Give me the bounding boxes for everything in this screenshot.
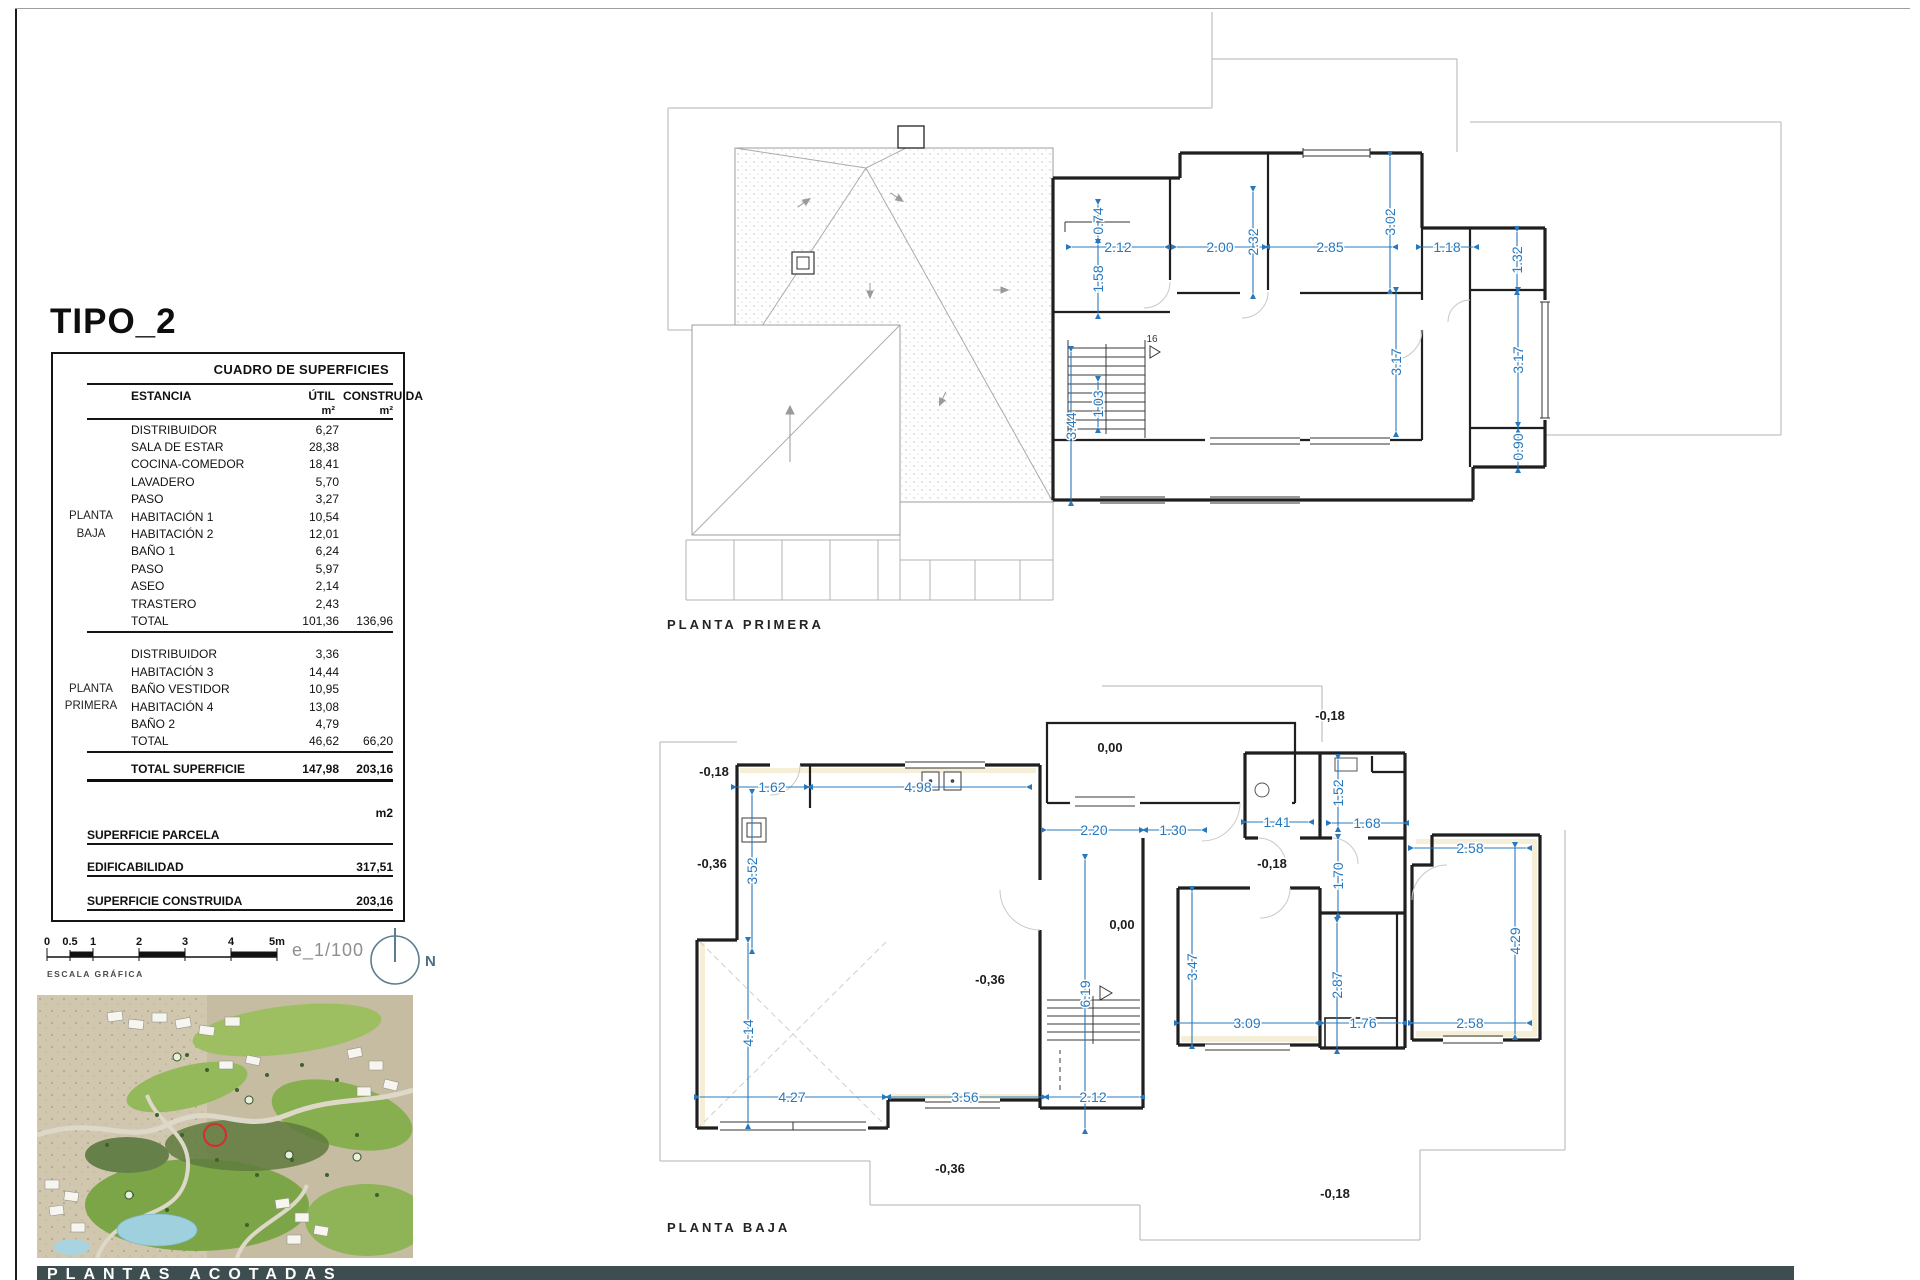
- m2-row: m2: [53, 804, 403, 821]
- dim-label: 2.32: [1245, 228, 1261, 255]
- roof-plan: [692, 126, 1053, 535]
- level-label: -0,18: [1320, 1186, 1350, 1201]
- scale-tick: 5m: [269, 936, 285, 948]
- level-label: -0,18: [1257, 856, 1287, 871]
- level-label: 0,00: [1097, 740, 1122, 755]
- level-label: 0,00: [1109, 917, 1134, 932]
- dim-label: 2.87: [1329, 971, 1345, 998]
- dim-label: 2.58: [1456, 1015, 1483, 1031]
- group-planta-baja: PLANTA BAJA DISTRIBUIDOR6,27 SALA DE EST…: [53, 421, 403, 630]
- planta-primera-label: PLANTA PRIMERA: [667, 617, 824, 632]
- entry-porch: [1047, 723, 1295, 806]
- scale-tick: 1: [90, 936, 96, 948]
- table-row: DISTRIBUIDOR6,27: [53, 421, 403, 438]
- dim-label: 3.02: [1382, 208, 1398, 235]
- divider: [87, 875, 393, 877]
- level-label: -0,36: [697, 856, 727, 871]
- superficie-construida-row: SUPERFICIE CONSTRUIDA203,16: [53, 892, 403, 908]
- dim-label: 2.12: [1104, 239, 1131, 255]
- dim-label: 4.98: [904, 779, 931, 795]
- group-label: PLANTA PRIMERA: [53, 681, 129, 716]
- dim-label: 4.27: [778, 1089, 805, 1105]
- dim-label: 1.62: [758, 779, 785, 795]
- roof-hatch-icon: [792, 252, 814, 274]
- table-row: COCINA-COMEDOR18,41: [53, 456, 403, 473]
- table-row: TRASTERO2,43: [53, 595, 403, 612]
- scale-tick: 3: [182, 936, 188, 948]
- lower-roof-terrace: [692, 325, 900, 535]
- superficie-parcela-row: SUPERFICIE PARCELA: [53, 826, 403, 842]
- dim-label: 1.30: [1159, 822, 1186, 838]
- dim-label: 2.85: [1316, 239, 1343, 255]
- dim-label: 1.52: [1330, 779, 1346, 806]
- table-row: HABITACIÓN 314,44: [53, 663, 403, 680]
- scale-tick: 0.5: [62, 936, 77, 948]
- edificabilidad-row: EDIFICABILIDAD317,51: [53, 858, 403, 874]
- table-row: SALA DE ESTAR28,38: [53, 438, 403, 455]
- planta-primera-drawing: 16 2.12 2.00 2.85 1.18: [640, 10, 1910, 655]
- windows: [1065, 148, 1550, 503]
- table-row: PASO3,27: [53, 491, 403, 508]
- dim-label: 4.29: [1507, 927, 1523, 954]
- dim-label: 1.70: [1330, 862, 1346, 889]
- table-row: BAÑO 16,24: [53, 543, 403, 560]
- dim-label: 0.74: [1090, 207, 1106, 234]
- level-label: -0,36: [975, 972, 1005, 987]
- divider: [87, 843, 393, 845]
- dim-label: 6.19: [1077, 980, 1093, 1007]
- sheet-frame-left: [15, 8, 17, 1280]
- dim-label: 2.58: [1456, 840, 1483, 856]
- sheet-title-bar: PLANTAS ACOTADAS: [37, 1266, 1794, 1280]
- dim-label: 4.14: [740, 1019, 756, 1046]
- table-title: CUADRO DE SUPERFICIES: [53, 354, 403, 382]
- group-label: PLANTA BAJA: [53, 508, 129, 543]
- scale-tick: 0: [44, 936, 50, 948]
- group-planta-primera: PLANTA PRIMERA DISTRIBUIDOR3,36 HABITACI…: [53, 646, 403, 750]
- dim-label: 1.18: [1433, 239, 1460, 255]
- dim-label: 1.41: [1263, 814, 1290, 830]
- level-label: -0,18: [699, 764, 729, 779]
- level-label: -0,36: [935, 1161, 965, 1176]
- sheet-frame-top: [15, 8, 1910, 9]
- north-arrow-icon: N: [355, 922, 455, 997]
- table-row: PASO5,97: [53, 560, 403, 577]
- table-row: BAÑO 24,79: [53, 715, 403, 732]
- sheet-title: PLANTAS ACOTADAS: [37, 1266, 1794, 1280]
- divider: [87, 418, 393, 420]
- level-label: -0,18: [1315, 708, 1345, 723]
- scale-caption: ESCALA GRÁFICA: [47, 969, 144, 979]
- divider: [87, 751, 393, 753]
- dim-label: 1.03: [1090, 390, 1106, 417]
- dim-label: 3.52: [744, 857, 760, 884]
- table-units-row: m² m²: [53, 403, 403, 417]
- dimension-lines: [700, 760, 1526, 1128]
- scale-tick: 2: [136, 936, 142, 948]
- dimension-lines: [1071, 157, 1518, 500]
- divider: [87, 909, 393, 911]
- chimney: [898, 126, 924, 148]
- dim-label: 3.17: [1388, 348, 1404, 375]
- scale-tick: 4: [228, 936, 235, 948]
- dim-label: 2.20: [1080, 822, 1107, 838]
- table-total-row: TOTAL46,6266,20: [53, 733, 403, 750]
- dim-label: 3.44: [1063, 412, 1079, 439]
- right-wing-walls: [1178, 753, 1540, 1048]
- staircase: [1047, 986, 1140, 1090]
- table-row: DISTRIBUIDOR3,36: [53, 646, 403, 663]
- staircase: [1068, 340, 1160, 438]
- plan-sheet: TIPO_2 CUADRO DE SUPERFICIES ESTANCIA ÚT…: [0, 0, 1920, 1280]
- dim-label: 1.68: [1353, 815, 1380, 831]
- total-superficie-row: TOTAL SUPERFICIE147,98203,16: [53, 760, 403, 777]
- dim-label: 2.12: [1079, 1089, 1106, 1105]
- dim-label: 1.76: [1349, 1015, 1376, 1031]
- divider: [87, 631, 393, 633]
- exterior-walls: [1053, 153, 1545, 500]
- surface-table: CUADRO DE SUPERFICIES ESTANCIA ÚTIL CONS…: [51, 352, 405, 922]
- dim-label: 1.32: [1509, 246, 1525, 273]
- north-label: N: [425, 953, 436, 970]
- dim-label: 3.17: [1510, 346, 1526, 373]
- dim-label: 3.47: [1184, 953, 1200, 980]
- dim-label: 2.00: [1206, 239, 1233, 255]
- scale-ratio: e_1/100: [292, 940, 364, 961]
- dim-label: 3.09: [1233, 1015, 1260, 1031]
- interior-walls: [810, 756, 1405, 1048]
- page-title: TIPO_2: [50, 302, 177, 342]
- windows: [720, 762, 1503, 1130]
- table-total-row: TOTAL101,36136,96: [53, 612, 403, 629]
- divider: [87, 383, 393, 385]
- table-row: ASEO2,14: [53, 578, 403, 595]
- planta-baja-drawing: 1.62 4.98 3.52 2.20 1.30 1.41 1.68 1.52 …: [600, 660, 1910, 1260]
- dim-label: 3.56: [951, 1089, 978, 1105]
- divider: [87, 779, 393, 782]
- table-row: LAVADERO5,70: [53, 473, 403, 490]
- dim-label: 0.90: [1510, 433, 1526, 460]
- dim-label: 1.58: [1090, 265, 1106, 292]
- stair-count-label: 16: [1146, 334, 1158, 345]
- site-location-map: [37, 995, 413, 1258]
- table-column-headers: ESTANCIA ÚTIL CONSTRUIDA: [53, 386, 403, 403]
- planta-baja-label: PLANTA BAJA: [667, 1220, 790, 1235]
